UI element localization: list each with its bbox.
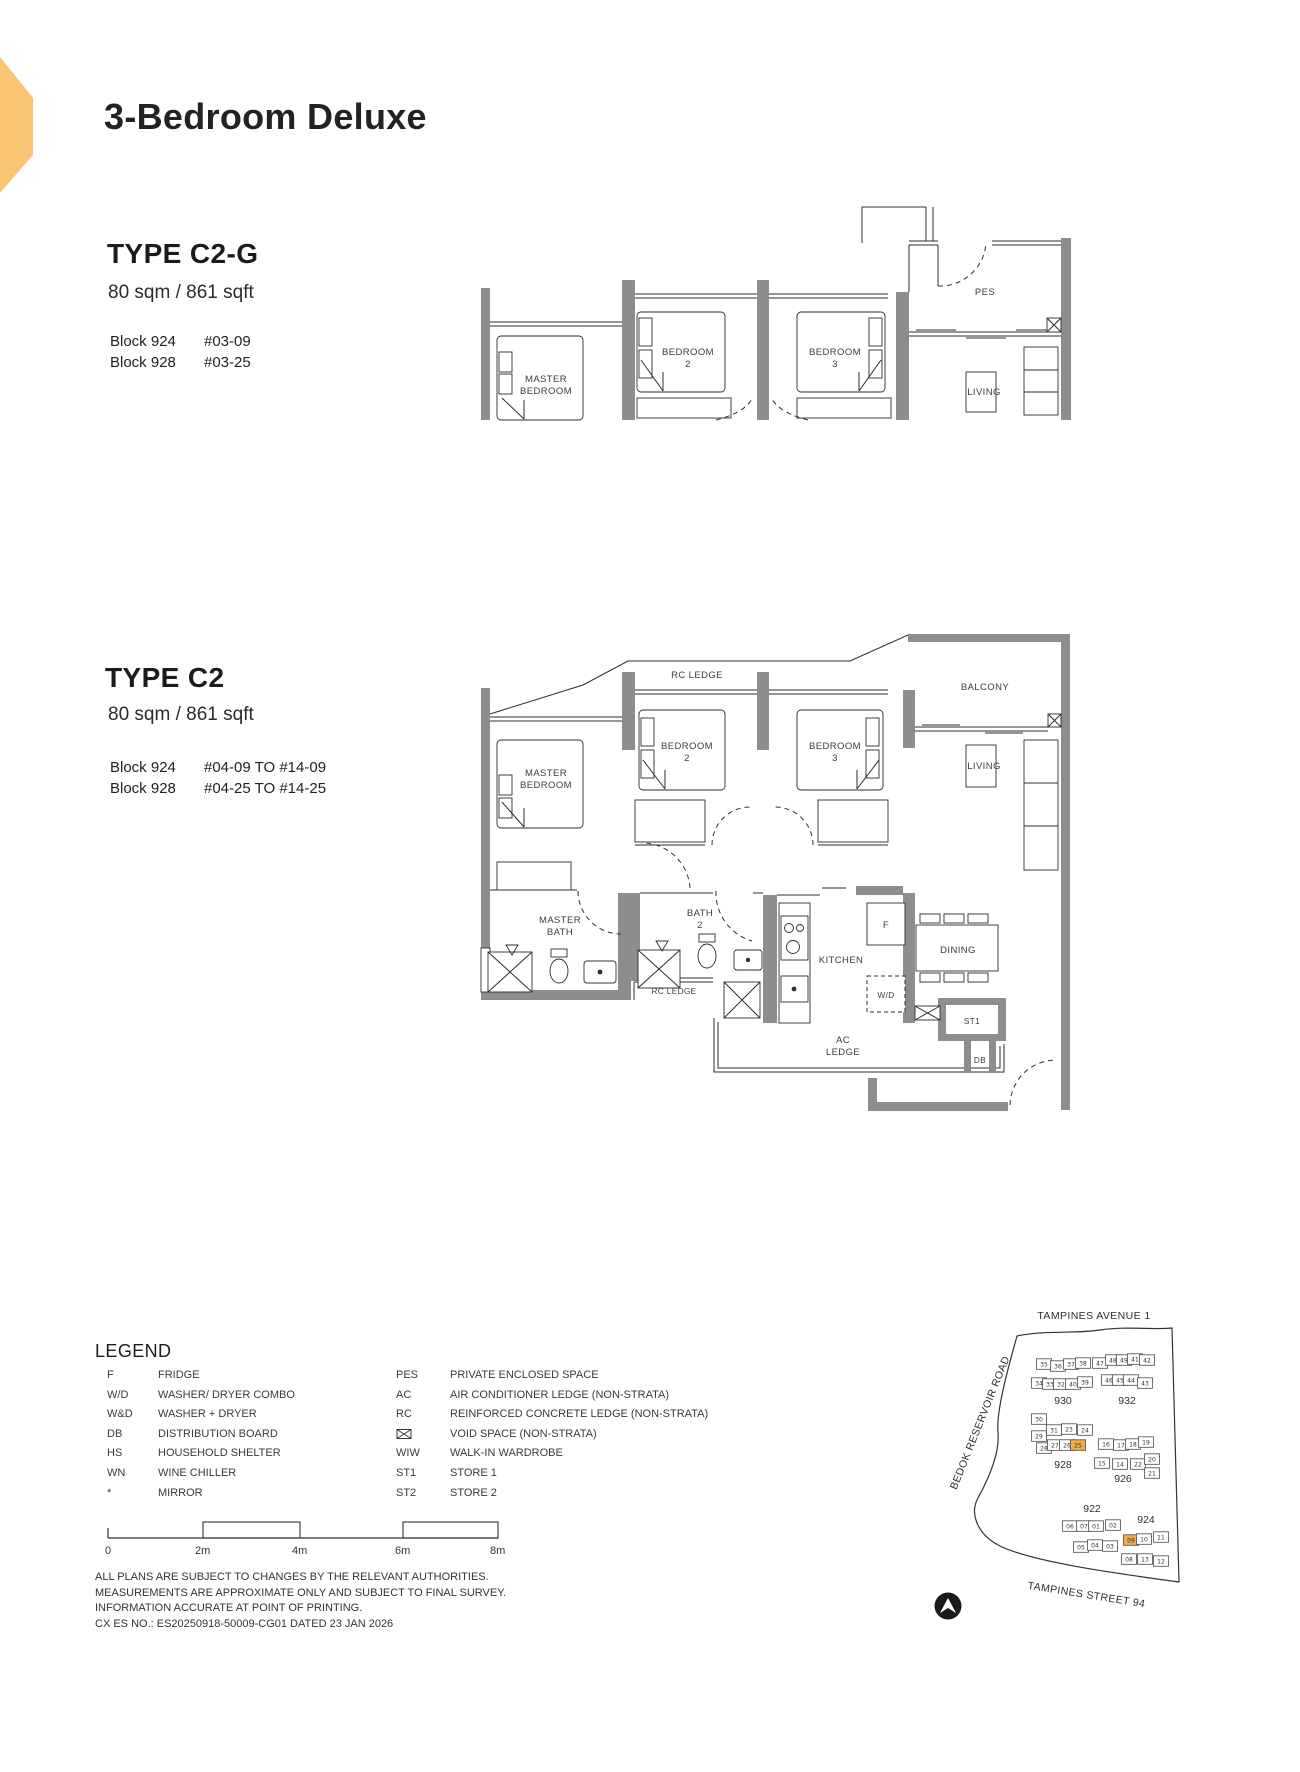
- map-unit-number: 32: [1057, 1381, 1065, 1388]
- plan-walls-thin: [490, 207, 1061, 338]
- map-unit-number: 34: [1035, 1380, 1043, 1387]
- legend-desc: STORE 2: [450, 1484, 497, 1504]
- legend-desc: HOUSEHOLD SHELTER: [158, 1444, 281, 1464]
- legend-row: WNWINE CHILLER: [107, 1464, 295, 1484]
- room-label-bedroom3: 3: [832, 359, 838, 370]
- scale-tick: 2m: [195, 1545, 210, 1557]
- map-unit-number: 25: [1074, 1442, 1082, 1449]
- type-c2-area: 80 sqm / 861 sqft: [108, 704, 254, 726]
- type-c2g-area: 80 sqm / 861 sqft: [108, 282, 254, 304]
- map-unit-number: 38: [1079, 1360, 1087, 1367]
- scale-tick: 6m: [395, 1545, 410, 1557]
- legend-desc: VOID SPACE (NON-STRATA): [450, 1425, 597, 1445]
- map-block-number: 922: [1083, 1503, 1101, 1515]
- label-ac-ledge: LEDGE: [826, 1047, 860, 1058]
- map-unit-number: 33: [1046, 1381, 1054, 1388]
- block-row: Block 928 #03-25: [110, 352, 251, 373]
- block-name: Block 928: [110, 778, 204, 799]
- legend-abbr: RC: [396, 1405, 450, 1425]
- map-unit-number: 14: [1116, 1461, 1124, 1468]
- legend-desc: REINFORCED CONCRETE LEDGE (NON-STRATA): [450, 1405, 708, 1425]
- map-unit-number: 20: [1148, 1456, 1156, 1463]
- map-unit-number: 49: [1120, 1357, 1128, 1364]
- room-label-pes: PES: [975, 287, 995, 298]
- map-unit-number: 30: [1035, 1416, 1043, 1423]
- room-label-balcony: BALCONY: [961, 682, 1009, 693]
- type-c2-name: TYPE C2: [105, 662, 225, 694]
- legend-row: ST2STORE 2: [396, 1484, 708, 1504]
- site-map: TAMPINES AVENUE 1 BEDOK RESERVOIR ROAD T…: [925, 1300, 1195, 1640]
- map-unit-number: 22: [1134, 1461, 1142, 1468]
- room-label-master-bedroom: MASTER: [525, 374, 567, 385]
- map-unit-number: 06: [1066, 1523, 1074, 1530]
- room-label-living: LIVING: [967, 761, 1001, 772]
- map-unit-number: 15: [1098, 1460, 1106, 1467]
- map-unit-number: 28: [1040, 1445, 1048, 1452]
- legend-abbr: W&D: [107, 1405, 158, 1425]
- map-blocks: 3536373847343332403993048494142464544439…: [1032, 1354, 1169, 1567]
- block-name: Block 928: [110, 352, 204, 373]
- room-label-bath2: BATH: [687, 908, 713, 919]
- map-unit-number: 18: [1129, 1441, 1137, 1448]
- map-block-number: 932: [1118, 1395, 1136, 1407]
- label-washer-dryer: W/D: [877, 991, 894, 1000]
- map-unit-number: 23: [1065, 1426, 1073, 1433]
- map-unit-number: 37: [1067, 1361, 1075, 1368]
- street-label-bottom: TAMPINES STREET 94: [1027, 1580, 1146, 1610]
- map-unit-number: 24: [1081, 1427, 1089, 1434]
- legend-column-left: FFRIDGE W/DWASHER/ DRYER COMBO W&DWASHER…: [107, 1366, 295, 1503]
- type-c2-blocks: Block 924 #04-09 TO #14-09 Block 928 #04…: [110, 757, 326, 799]
- void-space-icon: [396, 1425, 450, 1445]
- room-label-master-bedroom: BEDROOM: [520, 780, 572, 791]
- map-unit-number: 08: [1125, 1556, 1133, 1563]
- living-furniture: [966, 714, 1061, 870]
- legend-row: PESPRIVATE ENCLOSED SPACE: [396, 1366, 708, 1386]
- room-label-bedroom2: BEDROOM: [662, 347, 714, 358]
- map-unit-number: 05: [1077, 1544, 1085, 1551]
- floor-plan-type-c2: RC LEDGE BALCONY MASTER BEDROOM BEDROOM …: [420, 555, 1080, 1120]
- map-block-number: 924: [1137, 1514, 1155, 1526]
- map-unit-number: 47: [1096, 1360, 1104, 1367]
- legend-desc: WASHER + DRYER: [158, 1405, 257, 1425]
- map-unit-number: 27: [1051, 1442, 1059, 1449]
- map-unit-number: 41: [1131, 1356, 1139, 1363]
- legend-desc: STORE 1: [450, 1464, 497, 1484]
- wardrobe-icon: [497, 862, 571, 890]
- legend-abbr: WN: [107, 1464, 158, 1484]
- room-label-bedroom2: BEDROOM: [661, 741, 713, 752]
- scale-tick: 4m: [292, 1545, 307, 1557]
- legend-desc: MIRROR: [158, 1484, 203, 1504]
- legend-desc: FRIDGE: [158, 1366, 200, 1386]
- block-name: Block 924: [110, 331, 204, 352]
- map-unit-number: 36: [1054, 1363, 1062, 1370]
- map-unit-number: 07: [1080, 1523, 1088, 1530]
- legend-row: VOID SPACE (NON-STRATA): [396, 1425, 708, 1445]
- legend-desc: WINE CHILLER: [158, 1464, 236, 1484]
- bed-icon: [497, 312, 885, 420]
- wardrobe-icon: [797, 398, 891, 418]
- map-unit-number: 46: [1105, 1377, 1113, 1384]
- map-unit-number: 10: [1140, 1536, 1148, 1543]
- legend-desc: DISTRIBUTION BOARD: [158, 1425, 278, 1445]
- map-block-number: 930: [1054, 1395, 1072, 1407]
- room-label-bedroom3: BEDROOM: [809, 347, 861, 358]
- map-unit-number: 31: [1050, 1427, 1058, 1434]
- legend-abbr: DB: [107, 1425, 158, 1445]
- map-unit-number: 35: [1040, 1361, 1048, 1368]
- label-rc-ledge: RC LEDGE: [671, 670, 723, 681]
- label-rc-ledge: RC LEDGE: [651, 987, 696, 996]
- room-label-bedroom2: 2: [685, 359, 691, 370]
- block-units: #03-25: [204, 352, 251, 373]
- map-unit-number: 13: [1141, 1556, 1149, 1563]
- street-label-left: BEDOK RESERVOIR ROAD: [948, 1355, 1013, 1492]
- disclaimer-line: CX ES NO.: ES20250918-50009-CG01 DATED 2…: [95, 1617, 506, 1633]
- disclaimer-line: ALL PLANS ARE SUBJECT TO CHANGES BY THE …: [95, 1570, 506, 1586]
- map-unit-number: 39: [1081, 1379, 1089, 1386]
- room-label-master-bedroom: MASTER: [525, 768, 567, 779]
- type-c2g-blocks: Block 924 #03-09 Block 928 #03-25: [110, 331, 251, 373]
- room-label-kitchen: KITCHEN: [819, 955, 864, 966]
- map-unit-number: 21: [1148, 1470, 1156, 1477]
- map-unit-number: 40: [1069, 1381, 1077, 1388]
- legend-abbr: WIW: [396, 1444, 450, 1464]
- map-unit-number: 44: [1127, 1377, 1135, 1384]
- scale-tick: 0: [105, 1545, 111, 1557]
- map-unit-number: 17: [1117, 1442, 1125, 1449]
- legend-abbr: ST1: [396, 1464, 450, 1484]
- room-label-master-bath: BATH: [547, 927, 573, 938]
- map-unit-number: 04: [1091, 1542, 1099, 1549]
- room-label-dining: DINING: [940, 945, 976, 956]
- legend-row: DBDISTRIBUTION BOARD: [107, 1425, 295, 1445]
- map-unit-number: 12: [1157, 1558, 1165, 1565]
- legend-abbr: ST2: [396, 1484, 450, 1504]
- map-unit-number: 45: [1116, 1377, 1124, 1384]
- map-unit-number: 09: [1127, 1537, 1135, 1544]
- legend-row: HSHOUSEHOLD SHELTER: [107, 1444, 295, 1464]
- map-unit-number: 16: [1102, 1441, 1110, 1448]
- block-units: #04-25 TO #14-25: [204, 778, 326, 799]
- room-label-master-bath: MASTER: [539, 915, 581, 926]
- map-unit-number: 01: [1092, 1523, 1100, 1530]
- legend-row: FFRIDGE: [107, 1366, 295, 1386]
- map-block-number: 926: [1114, 1473, 1132, 1485]
- room-label-bedroom2: 2: [684, 753, 690, 764]
- map-unit-number: 29: [1035, 1433, 1043, 1440]
- legend-heading: LEGEND: [95, 1341, 171, 1362]
- legend-abbr: AC: [396, 1386, 450, 1406]
- legend-row: W&DWASHER + DRYER: [107, 1405, 295, 1425]
- map-unit-number: 19: [1142, 1439, 1150, 1446]
- room-label-bath2: 2: [697, 920, 703, 931]
- page-title: 3-Bedroom Deluxe: [104, 96, 427, 138]
- wardrobe-icon: [637, 398, 731, 418]
- block-row: Block 928 #04-25 TO #14-25: [110, 778, 326, 799]
- label-fridge: F: [883, 920, 889, 931]
- label-store1: ST1: [964, 1017, 980, 1026]
- legend-abbr: *: [107, 1484, 158, 1504]
- accent-ribbon: [0, 57, 33, 193]
- map-unit-number: 11: [1157, 1534, 1165, 1541]
- scale-tick: 8m: [490, 1545, 505, 1557]
- wardrobe-icon: [818, 800, 888, 842]
- map-unit-number: 43: [1141, 1380, 1149, 1387]
- disclaimer-line: INFORMATION ACCURATE AT POINT OF PRINTIN…: [95, 1601, 506, 1617]
- type-c2g-name: TYPE C2-G: [107, 238, 258, 270]
- legend-abbr: W/D: [107, 1386, 158, 1406]
- legend-row: WIWWALK-IN WARDROBE: [396, 1444, 708, 1464]
- block-row: Block 924 #04-09 TO #14-09: [110, 757, 326, 778]
- legend-desc: WALK-IN WARDROBE: [450, 1444, 563, 1464]
- legend-row: ACAIR CONDITIONER LEDGE (NON-STRATA): [396, 1386, 708, 1406]
- legend-row: ST1STORE 1: [396, 1464, 708, 1484]
- legend-abbr: PES: [396, 1366, 450, 1386]
- label-distribution-board: DB: [974, 1056, 986, 1065]
- north-compass-icon: [935, 1593, 962, 1620]
- legend-abbr: F: [107, 1366, 158, 1386]
- room-label-bedroom3: 3: [832, 753, 838, 764]
- brochure-page: 3-Bedroom Deluxe TYPE C2-G 80 sqm / 861 …: [0, 0, 1300, 1772]
- map-unit-number: 03: [1106, 1543, 1114, 1550]
- disclaimer-line: MEASUREMENTS ARE APPROXIMATE ONLY AND SU…: [95, 1586, 506, 1602]
- scale-bar: 0 2m 4m 6m 8m: [95, 1512, 515, 1560]
- disclaimer: ALL PLANS ARE SUBJECT TO CHANGES BY THE …: [95, 1570, 506, 1632]
- room-label-bedroom3: BEDROOM: [809, 741, 861, 752]
- block-units: #04-09 TO #14-09: [204, 757, 326, 778]
- map-unit-number: 48: [1109, 1357, 1117, 1364]
- map-unit-number: 26: [1063, 1442, 1071, 1449]
- map-block-number: 928: [1054, 1459, 1072, 1471]
- room-label-master-bedroom: BEDROOM: [520, 386, 572, 397]
- legend-desc: WASHER/ DRYER COMBO: [158, 1386, 295, 1406]
- legend-row: W/DWASHER/ DRYER COMBO: [107, 1386, 295, 1406]
- map-unit-number: 42: [1143, 1357, 1151, 1364]
- block-name: Block 924: [110, 757, 204, 778]
- floor-plan-type-c2g: MASTER BEDROOM BEDROOM 2 BEDROOM 3 PES L…: [420, 195, 1080, 425]
- block-units: #03-09: [204, 331, 251, 352]
- street-label-top: TAMPINES AVENUE 1: [1037, 1310, 1150, 1322]
- map-unit-number: 02: [1109, 1522, 1117, 1529]
- legend-column-right: PESPRIVATE ENCLOSED SPACE ACAIR CONDITIO…: [396, 1366, 708, 1503]
- room-label-living: LIVING: [967, 387, 1001, 398]
- legend-row: *MIRROR: [107, 1484, 295, 1504]
- living-furniture: [966, 318, 1061, 415]
- legend-desc: PRIVATE ENCLOSED SPACE: [450, 1366, 599, 1386]
- label-ac-ledge: AC: [836, 1035, 850, 1046]
- block-row: Block 924 #03-09: [110, 331, 251, 352]
- legend-row: RCREINFORCED CONCRETE LEDGE (NON-STRATA): [396, 1405, 708, 1425]
- wardrobe-icon: [635, 800, 705, 842]
- legend-desc: AIR CONDITIONER LEDGE (NON-STRATA): [450, 1386, 669, 1406]
- legend-abbr: HS: [107, 1444, 158, 1464]
